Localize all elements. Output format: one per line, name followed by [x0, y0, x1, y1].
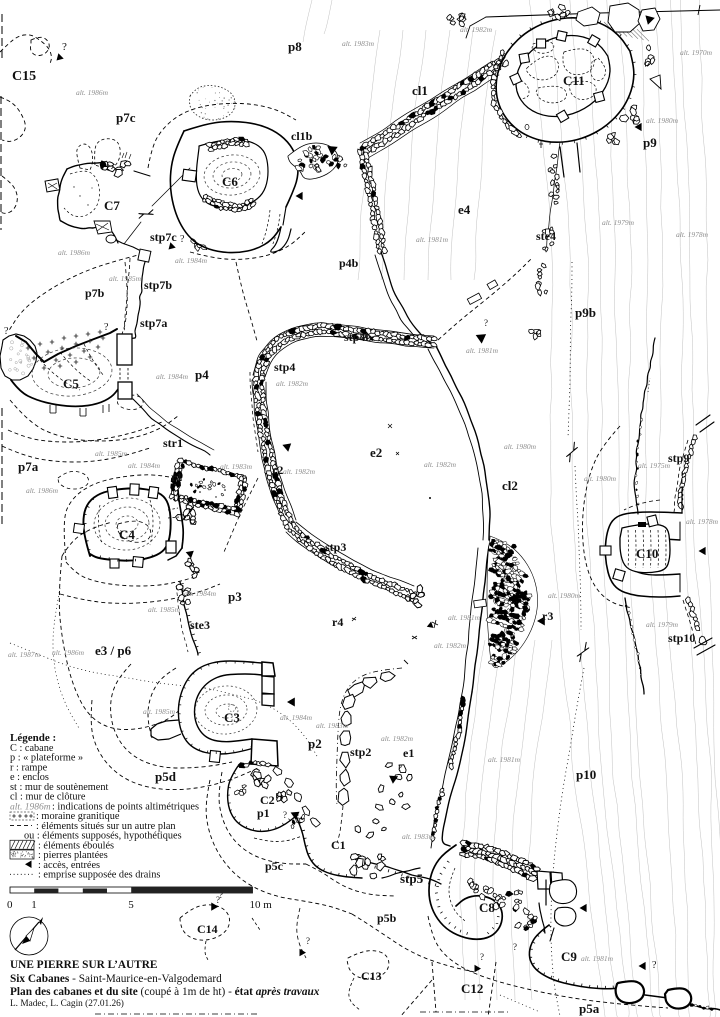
svg-text:alt. 1982m: alt. 1982m	[276, 379, 309, 388]
svg-text:C7: C7	[104, 198, 120, 213]
svg-text:cl1: cl1	[412, 83, 428, 98]
svg-text:alt. 1978m: alt. 1978m	[686, 517, 719, 526]
svg-text:r3: r3	[542, 609, 553, 623]
svg-text:C9: C9	[561, 949, 577, 964]
svg-text:r1: r1	[171, 470, 182, 484]
svg-text:str1: str1	[163, 436, 183, 450]
svg-text:C12: C12	[461, 981, 483, 996]
svg-text:p4: p4	[195, 367, 209, 382]
svg-text:stp3: stp3	[325, 540, 346, 554]
svg-text:stp2: stp2	[350, 745, 371, 759]
svg-text:p4b: p4b	[339, 256, 359, 270]
svg-text:e3 / p6: e3 / p6	[95, 643, 132, 658]
svg-text:p1: p1	[257, 806, 270, 820]
svg-text:p5b: p5b	[377, 911, 397, 925]
svg-text:Six Cabanes - Saint-Maurice-en: Six Cabanes - Saint-Maurice-en-Valgodema…	[10, 973, 222, 985]
svg-text:L. Madec, L. Cagin (27.01.26): L. Madec, L. Cagin (27.01.26)	[10, 998, 124, 1009]
svg-text:stp9: stp9	[668, 451, 689, 465]
svg-text:C5: C5	[63, 376, 79, 391]
svg-text:?: ?	[398, 763, 402, 773]
svg-text:cl1b: cl1b	[291, 129, 313, 143]
svg-text:ste4: ste4	[536, 229, 556, 243]
svg-text:alt. 1981m: alt. 1981m	[416, 235, 449, 244]
svg-text:C11: C11	[563, 73, 585, 88]
svg-text:C10: C10	[636, 546, 658, 561]
svg-text:alt. 1983m: alt. 1983m	[316, 721, 349, 730]
svg-text:alt. 1982m: alt. 1982m	[460, 25, 493, 34]
svg-text:e1: e1	[403, 746, 414, 760]
svg-text:stp7b: stp7b	[144, 278, 172, 292]
svg-text:?: ?	[104, 322, 109, 333]
svg-text:C3: C3	[224, 710, 240, 725]
svg-text:stp5: stp5	[400, 871, 424, 886]
svg-text:?: ?	[180, 234, 185, 245]
svg-text:alt. 1984m: alt. 1984m	[280, 713, 313, 722]
svg-text:alt. 1981m: alt. 1981m	[448, 613, 481, 622]
svg-text:p2: p2	[308, 736, 322, 751]
svg-text:p9b: p9b	[575, 305, 596, 320]
svg-text:alt. 1986m: alt. 1986m	[58, 248, 91, 257]
svg-text:C2: C2	[260, 793, 275, 807]
svg-text:C8: C8	[479, 900, 495, 915]
svg-text:alt. 1985m: alt. 1985m	[109, 274, 142, 283]
svg-text:p7b: p7b	[85, 286, 105, 300]
svg-text:alt. 1985m: alt. 1985m	[143, 707, 176, 716]
svg-text:cl2: cl2	[502, 478, 518, 493]
svg-text:alt. 1975m: alt. 1975m	[638, 461, 671, 470]
svg-text:alt. 1981m: alt. 1981m	[466, 346, 499, 355]
svg-text:p10: p10	[576, 767, 596, 782]
svg-text:r4: r4	[332, 615, 343, 629]
svg-text:p5d: p5d	[155, 769, 177, 784]
svg-text:C14: C14	[197, 922, 218, 936]
svg-text:stp7a: stp7a	[140, 316, 167, 330]
svg-text:?: ?	[283, 810, 287, 820]
svg-text:UNE PIERRE SUR L’AUTRE: UNE PIERRE SUR L’AUTRE	[10, 959, 157, 971]
svg-text:p7a: p7a	[18, 459, 39, 474]
svg-text:alt. 1982m: alt. 1982m	[424, 460, 457, 469]
svg-text:alt. 1980m: alt. 1980m	[548, 591, 581, 600]
svg-text:?: ?	[484, 318, 488, 328]
svg-text:e4: e4	[458, 202, 471, 217]
svg-text:alt. 1980m: alt. 1980m	[646, 116, 679, 125]
svg-text:alt. 1981m: alt. 1981m	[488, 755, 521, 764]
svg-text:alt. 1979m: alt. 1979m	[602, 218, 635, 227]
svg-text:0: 0	[7, 899, 13, 911]
svg-text:alt. 1979m: alt. 1979m	[646, 620, 679, 629]
svg-text:stp7c: stp7c	[150, 230, 177, 244]
svg-text:?: ?	[513, 942, 517, 952]
svg-text:alt. 1984m: alt. 1984m	[156, 372, 189, 381]
svg-text:alt. 1982m: alt. 1982m	[434, 641, 467, 650]
svg-text:p8: p8	[288, 39, 302, 54]
svg-text:alt. 1980m: alt. 1980m	[584, 474, 617, 483]
svg-text:5: 5	[128, 899, 134, 911]
svg-text:?: ?	[4, 326, 9, 337]
svg-text:alt. 1987m: alt. 1987m	[8, 650, 41, 659]
svg-text:alt. 1984m: alt. 1984m	[184, 589, 217, 598]
svg-text:Plan des cabanes et du site (c: Plan des cabanes et du site (coupé à 1m …	[10, 986, 320, 998]
svg-text:C15: C15	[12, 69, 36, 84]
svg-text:p3: p3	[228, 589, 242, 604]
svg-text:C4: C4	[119, 527, 135, 542]
svg-text:stp10: stp10	[668, 631, 695, 645]
svg-text:?: ?	[62, 41, 67, 53]
svg-text:C6: C6	[222, 174, 238, 189]
svg-text:p7c: p7c	[116, 110, 136, 125]
svg-text:alt. 1978m: alt. 1978m	[676, 230, 709, 239]
svg-text:1: 1	[31, 899, 37, 911]
svg-text:alt. 1985m: alt. 1985m	[148, 605, 181, 614]
svg-text:stp4: stp4	[274, 360, 295, 374]
svg-text:r2: r2	[272, 463, 283, 477]
svg-text:alt. 1984m: alt. 1984m	[128, 461, 161, 470]
svg-text:p9: p9	[643, 135, 657, 150]
svg-text:?: ?	[652, 960, 657, 971]
svg-text:ste3: ste3	[190, 618, 210, 632]
svg-text:alt. 1970m: alt. 1970m	[680, 48, 713, 57]
svg-text:alt. 1983m: alt. 1983m	[402, 832, 435, 841]
svg-text:C13: C13	[361, 969, 382, 983]
svg-text:: emprise supposée des drains: : emprise supposée des drains	[38, 870, 160, 881]
svg-text:alt. 1981m: alt. 1981m	[581, 954, 614, 963]
svg-text:stp4b: stp4b	[344, 330, 372, 344]
svg-text:alt. 1980m: alt. 1980m	[504, 442, 537, 451]
svg-text:?: ?	[480, 952, 484, 962]
svg-text:alt. 1986m: alt. 1986m	[52, 648, 85, 657]
svg-text:alt. 1984m: alt. 1984m	[175, 256, 208, 265]
svg-text:alt. 1986m: alt. 1986m	[76, 88, 109, 97]
svg-text:p5a: p5a	[579, 1001, 600, 1016]
svg-text:alt. 1982m: alt. 1982m	[381, 734, 414, 743]
svg-text:alt. 1983m: alt. 1983m	[342, 39, 375, 48]
svg-text:p5c: p5c	[265, 859, 284, 873]
svg-text:alt. 1983m: alt. 1983m	[220, 462, 253, 471]
svg-text:10 m: 10 m	[250, 899, 273, 911]
svg-text:e2: e2	[370, 445, 382, 460]
svg-text:?: ?	[306, 936, 310, 946]
svg-text:alt. 1986m: alt. 1986m	[26, 486, 59, 495]
svg-text:alt. 1985m: alt. 1985m	[95, 449, 128, 458]
svg-text:C1: C1	[331, 838, 346, 852]
svg-text:alt. 1982m: alt. 1982m	[283, 467, 316, 476]
